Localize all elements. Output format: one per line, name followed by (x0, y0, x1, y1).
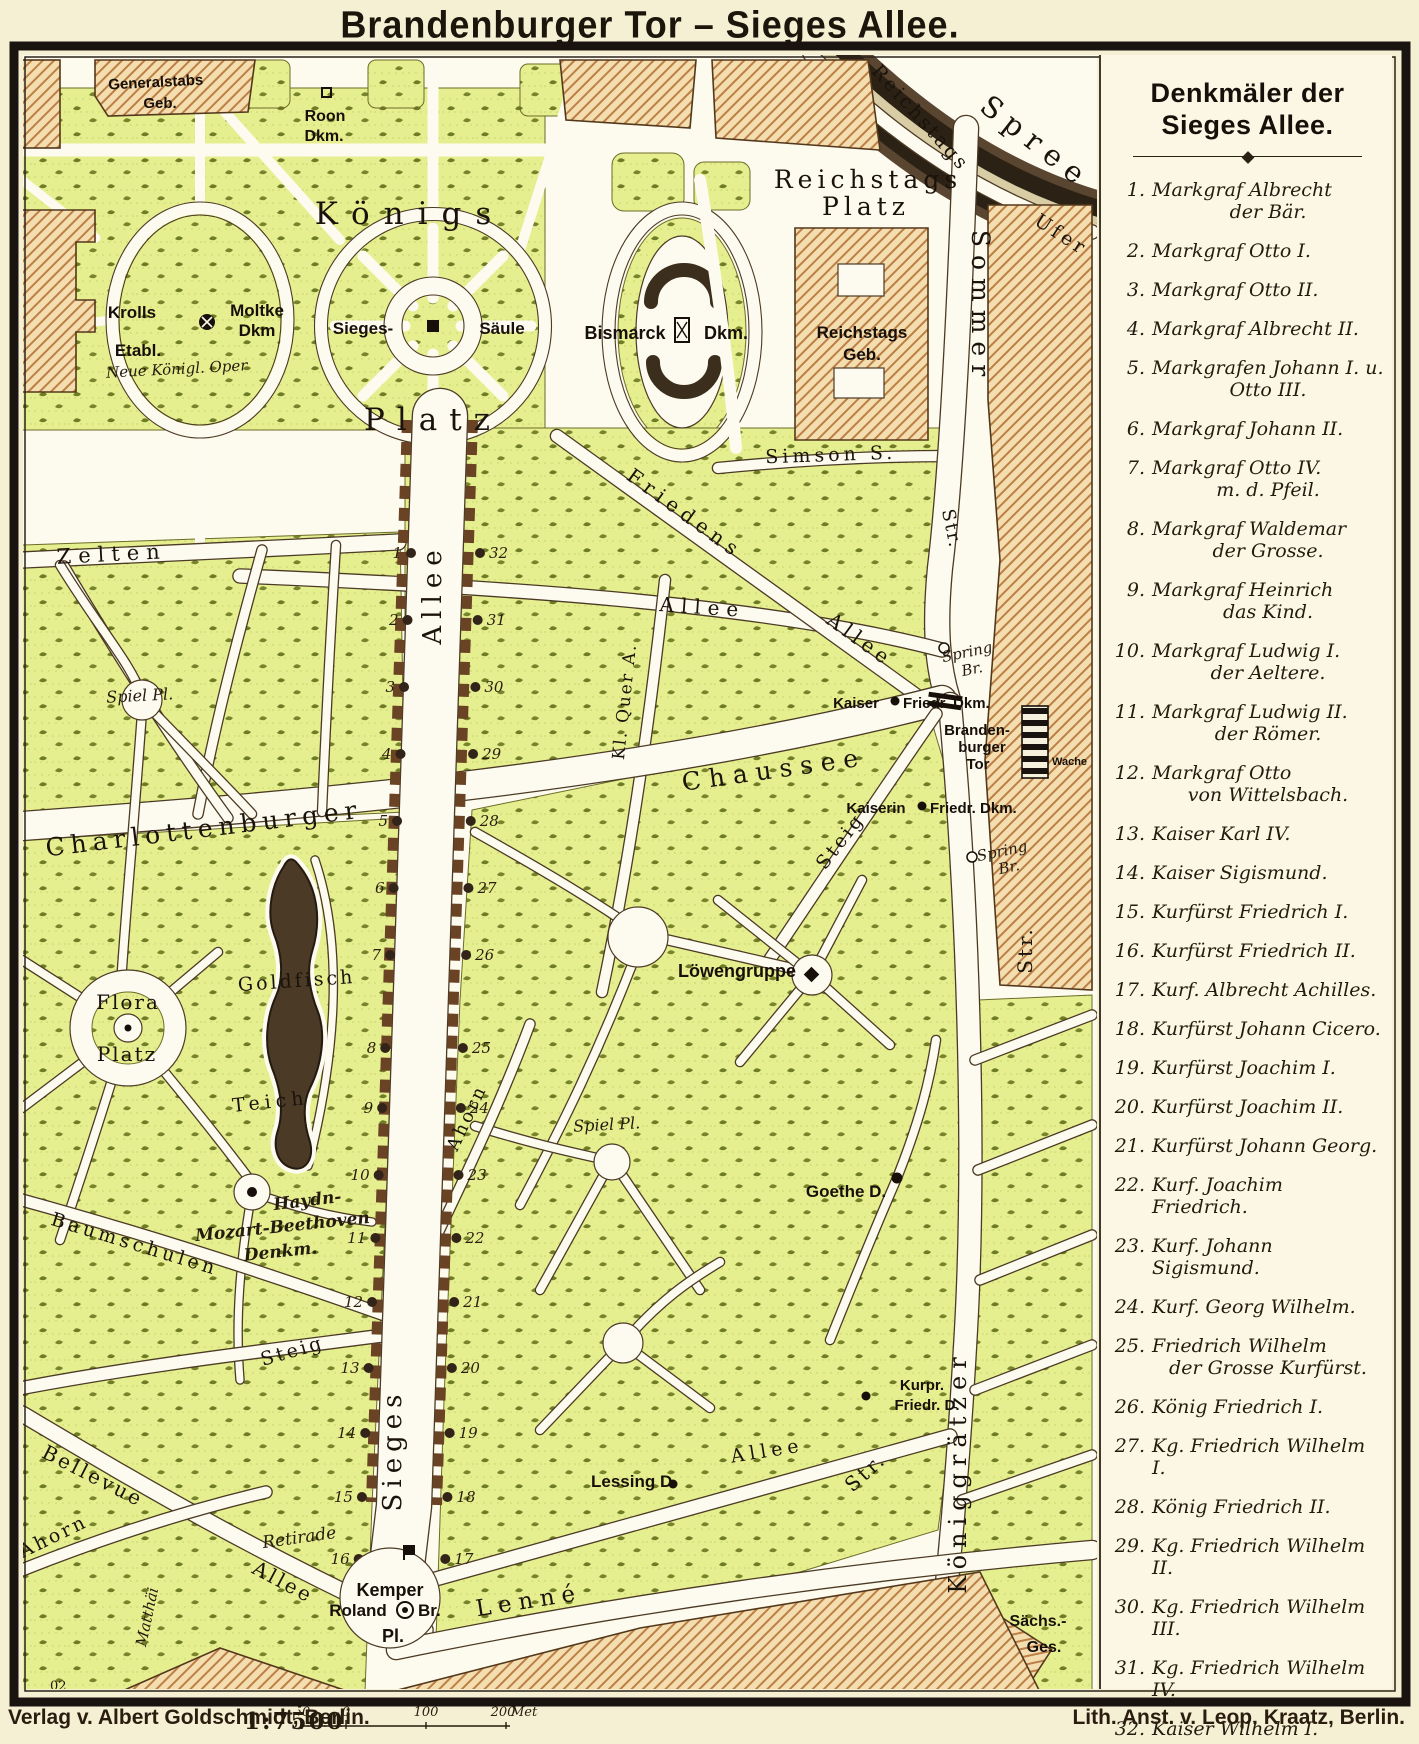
monument-dot (385, 950, 395, 960)
monument-number-east-26: 26 (474, 946, 495, 964)
legend-item-number: 16. (1111, 940, 1145, 962)
legend-item-number: 28. (1111, 1496, 1145, 1518)
legend-item-9: 9.Markgraf Heinrichdas Kind. (1111, 579, 1384, 623)
monument-number-west-16: 16 (331, 1550, 351, 1568)
label-simson-strasse: Simson S. (765, 442, 897, 469)
label-krolls: Krolls (108, 303, 156, 322)
monument-number-east-27: 27 (476, 879, 497, 897)
monument-dot (445, 1428, 455, 1438)
map-area: Generalstabs Geb. Roon Dkm. Königs Platz… (15, 48, 1099, 1695)
monument-number-west-15: 15 (334, 1488, 353, 1506)
legend-item-5: 5.Markgrafen Johann I. u.Otto III. (1111, 357, 1384, 401)
legend-item-number: 13. (1111, 823, 1145, 845)
label-sieges-allee-top: Allee (418, 543, 448, 645)
label-bismarck: Bismarck (584, 323, 666, 343)
bismarck-monument-icon (675, 318, 689, 342)
monument-number-east-30: 30 (484, 678, 504, 696)
label-moltke-dkm: Dkm (239, 321, 276, 340)
legend-item-2: 2.Markgraf Otto I. (1111, 240, 1384, 262)
legend-item-number: 9. (1111, 579, 1145, 623)
monument-number-west-9: 9 (364, 1099, 374, 1117)
legend-item-number: 27. (1111, 1435, 1145, 1479)
label-roland-br: Br. (418, 1601, 441, 1620)
scale-bar: 50 0 100 200 Meter (298, 1700, 538, 1740)
legend-item-number: 10. (1111, 640, 1145, 684)
legend-item-text: Kurfürst Johann Cicero. (1152, 1018, 1384, 1040)
monument-dot (396, 749, 406, 759)
monument-number-east-32: 32 (489, 544, 508, 562)
legend-item-text: Markgraf Albrechtder Bär. (1152, 179, 1384, 223)
monument-dot (447, 1363, 457, 1373)
label-brandenburger-2: burger (958, 739, 1006, 756)
monument-dot (463, 883, 473, 893)
legend-item-text: Kurfürst Joachim II. (1152, 1096, 1384, 1118)
monument-number-east-21: 21 (462, 1293, 482, 1311)
legend-item-number: 22. (1111, 1174, 1145, 1218)
monument-number-east-31: 31 (487, 611, 506, 629)
legend-item-24: 24.Kurf. Georg Wilhelm. (1111, 1296, 1384, 1318)
label-sommer-str: Sommer (966, 230, 995, 384)
legend-item-29: 29.Kg. Friedrich Wilhelm II. (1111, 1535, 1384, 1579)
label-flora: Flora (96, 990, 160, 1014)
legend-item-text: Markgraf Otto IV.m. d. Pfeil. (1152, 457, 1384, 501)
goethe-denkmal-icon (892, 1173, 903, 1184)
monument-dot (380, 1043, 390, 1053)
kurprinz-denkmal-icon (862, 1392, 871, 1401)
monument-dot (364, 1363, 374, 1373)
scale-tick-100: 100 (414, 1705, 439, 1720)
legend-item-16: 16.Kurfürst Friedrich II. (1111, 940, 1384, 962)
siegessaeule-icon (427, 320, 439, 332)
legend-item-30: 30.Kg. Friedrich Wilhelm III. (1111, 1596, 1384, 1640)
legend-panel: Denkmäler der Sieges Allee. 1.Markgraf A… (1099, 55, 1392, 1689)
legend-item-8: 8.Markgraf Waldemarder Grosse. (1111, 518, 1384, 562)
legend-item-31: 31.Kg. Friedrich Wilhelm IV. (1111, 1657, 1384, 1701)
legend-item-number: 29. (1111, 1535, 1145, 1579)
monument-number-east-23: 23 (467, 1166, 487, 1184)
monument-number-west-13: 13 (341, 1359, 360, 1377)
monument-dot (367, 1297, 377, 1307)
scale-tick-0: 0 (342, 1705, 350, 1720)
legend-item-7: 7.Markgraf Otto IV.m. d. Pfeil. (1111, 457, 1384, 501)
legend-item-19: 19.Kurfürst Joachim I. (1111, 1057, 1384, 1079)
legend-item-number: 3. (1111, 279, 1145, 301)
label-reichstagsplatz-2: Platz (822, 192, 910, 221)
legend-item-text: Markgraf Ludwig II.der Römer. (1152, 701, 1384, 745)
legend-item-text: Markgraf Heinrichdas Kind. (1152, 579, 1384, 623)
monument-dot (473, 615, 483, 625)
legend-item-text: Markgraf Johann II. (1152, 418, 1384, 440)
monument-dot (451, 1233, 461, 1243)
legend-item-text: Markgraf Ludwig I.der Aeltere. (1152, 640, 1384, 684)
monument-number-east-22: 22 (464, 1229, 484, 1247)
lithographer-credit: Lith. Anst. v. Leop. Kraatz, Berlin. (1072, 1706, 1405, 1730)
legend-item-number: 24. (1111, 1296, 1145, 1318)
haydn-denkmal-icon (247, 1187, 257, 1197)
label-loewengruppe: Löwengruppe (678, 961, 796, 981)
legend-item-number: 20. (1111, 1096, 1145, 1118)
monument-number-west-5: 5 (379, 812, 389, 830)
monument-dot (389, 883, 399, 893)
monument-number-west-14: 14 (337, 1424, 356, 1442)
legend-item-22: 22.Kurf. Joachim Friedrich. (1111, 1174, 1384, 1218)
monument-dot (461, 950, 471, 960)
label-roland: Roland (329, 1601, 387, 1620)
monument-dot (377, 1103, 387, 1113)
legend-item-number: 23. (1111, 1235, 1145, 1279)
monument-number-west-11: 11 (347, 1229, 366, 1247)
label-kaiser-friedrich-2: Friedr. Dkm. (903, 695, 990, 712)
legend-item-text: Kurfürst Friedrich I. (1152, 901, 1384, 923)
legend-item-number: 19. (1111, 1057, 1145, 1079)
legend-item-10: 10.Markgraf Ludwig I.der Aeltere. (1111, 640, 1384, 684)
monument-dot (470, 682, 480, 692)
legend-item-text: Kaiser Karl IV. (1152, 823, 1384, 845)
legend-item-text: Kg. Friedrich Wilhelm I. (1152, 1435, 1384, 1479)
legend-item-number: 30. (1111, 1596, 1145, 1640)
legend-item-text: Friedrich Wilhelmder Grosse Kurfürst. (1152, 1335, 1384, 1379)
label-sieges-saeule-1: Sieges- (333, 319, 393, 338)
legend-item-text: König Friedrich I. (1152, 1396, 1384, 1418)
legend-item-1: 1.Markgraf Albrechtder Bär. (1111, 179, 1384, 223)
legend-item-text: Kurfürst Joachim I. (1152, 1057, 1384, 1079)
legend-item-11: 11.Markgraf Ludwig II.der Römer. (1111, 701, 1384, 745)
scale-tick-50: 50 (298, 1705, 310, 1720)
legend-item-number: 5. (1111, 357, 1145, 401)
label-reichstagsgeb-2: Geb. (843, 345, 881, 364)
label-saechs-2: Ges. (1027, 1639, 1062, 1656)
legend-item-14: 14.Kaiser Sigismund. (1111, 862, 1384, 884)
legend-item-number: 2. (1111, 240, 1145, 262)
monument-dot (475, 548, 485, 558)
legend-item-number: 12. (1111, 762, 1145, 806)
legend-title: Denkmäler der Sieges Allee. (1111, 77, 1384, 141)
legend-item-text: Kaiser Sigismund. (1152, 862, 1384, 884)
legend-item-text: Kurf. Georg Wilhelm. (1152, 1296, 1384, 1318)
monument-dot (403, 615, 413, 625)
legend-item-12: 12.Markgraf Ottovon Wittelsbach. (1111, 762, 1384, 806)
monument-dot (357, 1492, 367, 1502)
label-reichstagsplatz-1: Reichstags (774, 165, 962, 194)
legend-item-15: 15.Kurfürst Friedrich I. (1111, 901, 1384, 923)
legend-item-4: 4.Markgraf Albrecht II. (1111, 318, 1384, 340)
monument-number-west-8: 8 (367, 1039, 377, 1057)
scale-unit: Meter (510, 1705, 538, 1720)
legend-item-3: 3.Markgraf Otto II. (1111, 279, 1384, 301)
legend-item-text: Kg. Friedrich Wilhelm III. (1152, 1596, 1384, 1640)
monument-number-west-4: 4 (381, 745, 392, 763)
legend-item-text: Markgraf Albrecht II. (1152, 318, 1384, 340)
label-reichstagsgeb-1: Reichstags (817, 323, 908, 342)
monument-dot (406, 548, 416, 558)
legend-item-6: 6.Markgraf Johann II. (1111, 418, 1384, 440)
kaiserin-friedrich-dkm-icon (918, 802, 927, 811)
legend-title-line1: Denkmäler der (1150, 78, 1344, 108)
monument-dot (440, 1554, 450, 1564)
label-wache: Wache (1052, 756, 1087, 768)
legend-item-21: 21.Kurfürst Johann Georg. (1111, 1135, 1384, 1157)
monument-number-east-28: 28 (479, 812, 499, 830)
legend-item-28: 28.König Friedrich II. (1111, 1496, 1384, 1518)
label-brandenburger-3: Tor (966, 756, 989, 773)
monument-dot (360, 1428, 370, 1438)
moltke-monument-icon (199, 314, 215, 330)
monument-number-east-20: 20 (460, 1359, 481, 1377)
legend-item-number: 31. (1111, 1657, 1145, 1701)
legend-item-text: Markgraf Otto II. (1152, 279, 1384, 301)
monument-number-west-12: 12 (344, 1293, 363, 1311)
monument-dot (468, 749, 478, 759)
monument-number-east-24: 24 (469, 1099, 489, 1117)
label-kemper: Kemper (356, 1580, 423, 1600)
monument-dot (449, 1297, 459, 1307)
label-spielplatz-mid: Spiel Pl. (573, 1113, 641, 1135)
page: Brandenburger Tor – Sieges Allee. (0, 0, 1419, 1744)
legend-item-text: Kg. Friedrich Wilhelm IV. (1152, 1657, 1384, 1701)
legend-item-23: 23.Kurf. Johann Sigismund. (1111, 1235, 1384, 1279)
label-moltke: Moltke (230, 301, 284, 320)
legend-item-number: 1. (1111, 179, 1145, 223)
legend-item-number: 26. (1111, 1396, 1145, 1418)
legend-item-17: 17.Kurf. Albrecht Achilles. (1111, 979, 1384, 1001)
monument-dot (458, 1043, 468, 1053)
label-koeniggraetzer: Königgrätzer (944, 1350, 972, 1593)
label-koenigs-platz: Platz (364, 402, 502, 438)
label-sieges-allee-bottom: Sieges (378, 1389, 408, 1512)
monument-dot (442, 1492, 452, 1502)
legend-title-line2: Sieges Allee. (1161, 110, 1333, 140)
label-spielplatz-west: Spiel Pl. (106, 684, 174, 706)
label-roon-dkm: Dkm. (304, 128, 343, 145)
legend-item-list: 1.Markgraf Albrechtder Bär.2.Markgraf Ot… (1111, 179, 1384, 1740)
legend-item-20: 20.Kurfürst Joachim II. (1111, 1096, 1384, 1118)
monument-dot (374, 1170, 384, 1180)
label-roon: Roon (305, 108, 346, 125)
legend-item-text: Markgraf Waldemarder Grosse. (1152, 518, 1384, 562)
label-krolls-etabl: Etabl. (115, 341, 161, 360)
legend-item-text: Kurf. Albrecht Achilles. (1152, 979, 1384, 1001)
monument-number-west-3: 3 (385, 678, 395, 696)
legend-item-number: 7. (1111, 457, 1145, 501)
kaiser-friedrich-dkm-icon (891, 697, 900, 706)
monument-number-west-2: 2 (388, 611, 399, 629)
monument-dot (454, 1170, 464, 1180)
legend-item-number: 18. (1111, 1018, 1145, 1040)
legend-item-text: Markgrafen Johann I. u.Otto III. (1152, 357, 1384, 401)
monument-dot (399, 682, 409, 692)
label-bismarck-dkm: Dkm. (704, 323, 748, 343)
legend-item-number: 14. (1111, 862, 1145, 884)
label-generalstabs-geb: Geb. (143, 95, 176, 112)
legend-item-text: Markgraf Otto I. (1152, 240, 1384, 262)
legend-item-number: 11. (1111, 701, 1145, 745)
legend-item-25: 25.Friedrich Wilhelmder Grosse Kurfürst. (1111, 1335, 1384, 1379)
legend-item-number: 4. (1111, 318, 1145, 340)
legend-item-number: 17. (1111, 979, 1145, 1001)
legend-item-number: 15. (1111, 901, 1145, 923)
legend-item-text: Kurfürst Johann Georg. (1152, 1135, 1384, 1157)
label-lessing: Lessing D. (591, 1472, 677, 1491)
label-strasse-mid-right: Str. (1013, 926, 1037, 973)
legend-item-text: Kg. Friedrich Wilhelm II. (1152, 1535, 1384, 1579)
label-brandenburger-1: Branden- (944, 722, 1010, 739)
monument-number-east-29: 29 (481, 745, 502, 763)
label-koenigs: Königs (315, 196, 506, 232)
legend-item-number: 21. (1111, 1135, 1145, 1157)
legend-divider (1133, 149, 1362, 165)
legend-item-number: 8. (1111, 518, 1145, 562)
label-kemper-pl: Pl. (382, 1626, 404, 1646)
label-kaiserin-friedrich-2: Friedr. Dkm. (930, 800, 1017, 817)
monument-number-east-19: 19 (459, 1424, 479, 1442)
monument-number-east-18: 18 (456, 1488, 475, 1506)
monument-number-west-6: 6 (375, 879, 385, 897)
monument-number-west-1: 1 (392, 544, 402, 562)
legend-item-text: Kurf. Johann Sigismund. (1152, 1235, 1384, 1279)
monument-number-east-25: 25 (471, 1039, 491, 1057)
monument-dot (370, 1233, 380, 1243)
label-saechs-1: Sächs.- (1010, 1613, 1067, 1630)
monument-number-west-10: 10 (351, 1166, 371, 1184)
monument-number-west-7: 7 (372, 946, 382, 964)
label-kaiser-friedrich-1: Kaiser (833, 695, 879, 712)
legend-item-number: 25. (1111, 1335, 1145, 1379)
legend-item-text: Kurfürst Friedrich II. (1152, 940, 1384, 962)
legend-item-13: 13.Kaiser Karl IV. (1111, 823, 1384, 845)
monument-dot (466, 816, 476, 826)
label-sieges-saeule-2: Säule (479, 319, 524, 338)
legend-item-text: König Friedrich II. (1152, 1496, 1384, 1518)
monument-number-east-17: 17 (454, 1550, 474, 1568)
label-kurprinz-1: Kurpr. (900, 1377, 944, 1394)
label-flora-platz: Platz (97, 1042, 157, 1066)
legend-item-text: Markgraf Ottovon Wittelsbach. (1152, 762, 1384, 806)
label-goethe: Goethe D. (806, 1182, 886, 1201)
legend-item-number: 6. (1111, 418, 1145, 440)
legend-item-18: 18.Kurfürst Johann Cicero. (1111, 1018, 1384, 1040)
legend-item-text: Kurf. Joachim Friedrich. (1152, 1174, 1384, 1218)
legend-item-27: 27.Kg. Friedrich Wilhelm I. (1111, 1435, 1384, 1479)
monument-dot (392, 816, 402, 826)
legend-item-26: 26.König Friedrich I. (1111, 1396, 1384, 1418)
